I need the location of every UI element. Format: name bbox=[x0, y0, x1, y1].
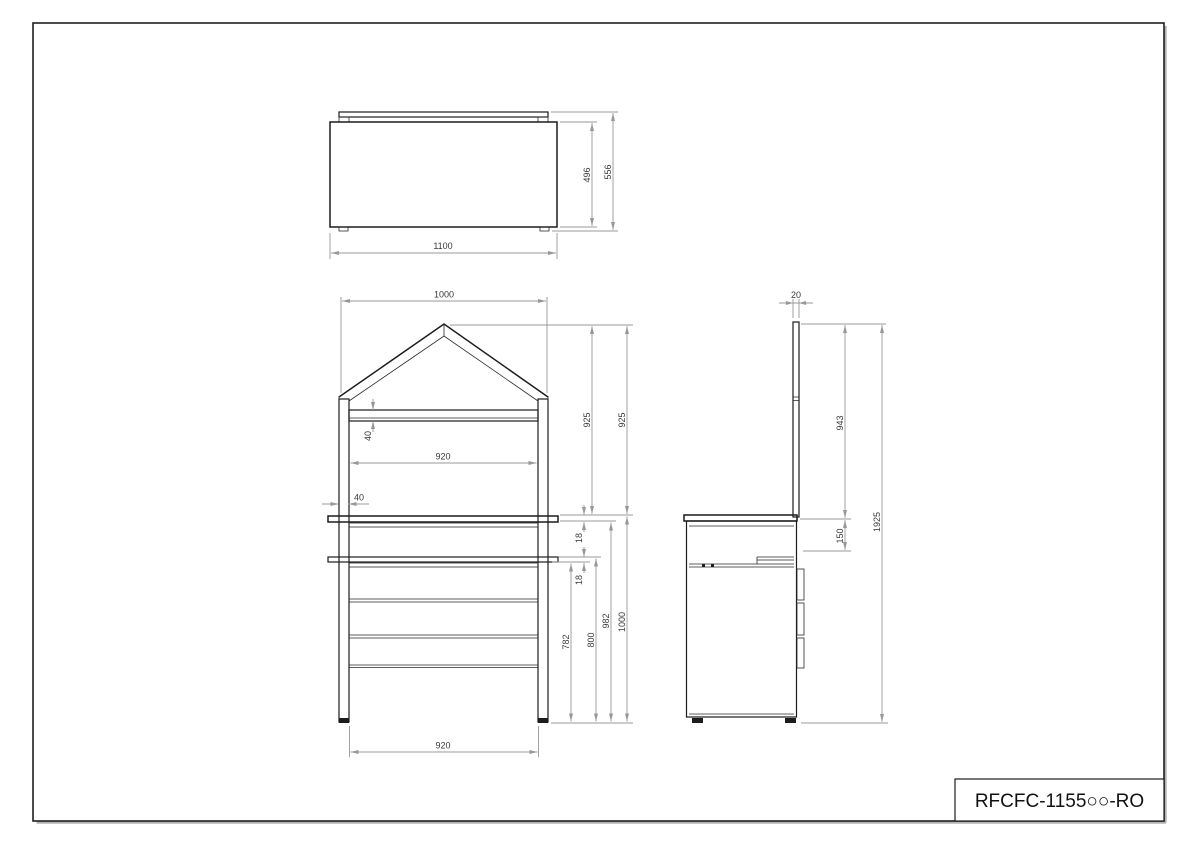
drawing-canvas: 1100 496 556 bbox=[0, 0, 1200, 848]
dim-front-roof-shelf-height: 40 bbox=[363, 431, 373, 441]
front-foot-left bbox=[339, 718, 349, 723]
dim-front-height-to-rail-top: 800 bbox=[586, 632, 596, 647]
side-foot-back bbox=[785, 718, 796, 723]
dim-top-body-depth: 496 bbox=[582, 167, 592, 182]
title-block-code: RFCFC-1155○○-RO bbox=[975, 791, 1144, 812]
dim-front-upper-height-right: 925 bbox=[617, 412, 627, 427]
dim-top-overall-width: 1100 bbox=[433, 241, 452, 251]
side-fitting-dot bbox=[711, 564, 714, 567]
dim-front-height-to-rail-bottom: 782 bbox=[561, 634, 571, 649]
dim-side-panel-height: 943 bbox=[835, 415, 845, 430]
technical-drawing: 1100 496 556 bbox=[0, 0, 1200, 848]
dim-front-roof-inner-width: 920 bbox=[435, 452, 450, 462]
dim-front-cabinet-height: 1000 bbox=[617, 612, 627, 632]
dim-front-upper-height-left: 925 bbox=[582, 412, 592, 427]
dim-front-worktop-thickness: 18 bbox=[574, 533, 584, 543]
dim-front-post-width: 40 bbox=[354, 493, 364, 503]
dim-side-overall-height: 1925 bbox=[872, 512, 882, 532]
dim-side-panel-thickness: 20 bbox=[791, 290, 801, 300]
dim-top-overall-depth: 556 bbox=[603, 164, 613, 179]
dim-front-base-inner-width: 920 bbox=[435, 741, 450, 751]
front-foot-right bbox=[538, 718, 548, 723]
dim-front-height-under-worktop: 982 bbox=[601, 613, 611, 628]
dim-front-rail-thickness: 18 bbox=[574, 575, 584, 585]
title-block: RFCFC-1155○○-RO bbox=[955, 779, 1164, 821]
side-foot-front bbox=[692, 718, 703, 723]
dim-front-frame-width: 1000 bbox=[434, 290, 454, 300]
sheet-border bbox=[33, 23, 1166, 823]
dim-side-rail-drop: 150 bbox=[835, 528, 845, 543]
side-fitting-dot bbox=[702, 564, 705, 567]
